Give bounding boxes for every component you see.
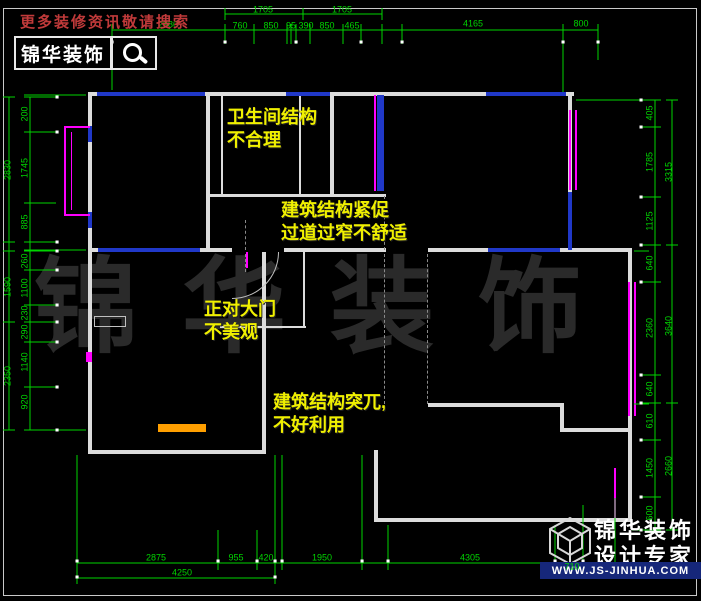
dimension-left: 1590 [4, 277, 13, 297]
dimension-right: 640 [646, 381, 655, 396]
magnifier-icon-handle [139, 56, 148, 65]
dimension-bottom: 955 [228, 554, 243, 563]
dimension-right: 610 [646, 413, 655, 428]
dimension-right: 1125 [646, 211, 655, 230]
dimension-top: 1705 [253, 6, 273, 15]
dimension-left: 885 [21, 214, 30, 229]
brand-text: 锦华装饰 [21, 40, 105, 67]
dimension-bottom: 4305 [460, 554, 480, 563]
dimension-top: 390 [298, 22, 313, 31]
dimension-left: 920 [21, 394, 30, 409]
dimension-linework [0, 0, 701, 601]
annotation-text: 卫生间结构 不合理 [227, 106, 317, 152]
dimension-right: 640 [646, 255, 655, 270]
logo-cube-icon [546, 515, 594, 565]
dimension-top: 1705 [332, 6, 352, 15]
dimension-bottom: 1950 [312, 554, 332, 563]
annotation-text: 正对大门 不美观 [204, 298, 276, 344]
dimension-right: 1450 [646, 458, 655, 478]
dimension-left: 2830 [4, 160, 13, 180]
dimension-top: 465 [344, 22, 359, 31]
dimension-left: 2350 [4, 366, 13, 386]
dimension-bottom: 710 [564, 563, 579, 572]
dimension-bottom: 4250 [172, 569, 192, 578]
dimension-left: 1745 [21, 158, 30, 178]
dimension-left: 1100 [21, 278, 30, 297]
dimension-top: 850 [263, 22, 278, 31]
dimension-top: 850 [319, 22, 334, 31]
dimension-right: 600 [646, 505, 655, 520]
dimension-left: 200 [21, 106, 30, 121]
search-button[interactable] [111, 36, 157, 70]
dimension-right: 405 [646, 105, 655, 120]
dimension-top: 95 [286, 22, 296, 31]
annotation-text: 建筑结构紧促 过道过窄不舒适 [281, 199, 407, 245]
dimension-left: 290 [21, 324, 30, 339]
annotation-text: 建筑结构突兀, 不好利用 [273, 391, 386, 437]
dimension-right: 3640 [665, 316, 674, 336]
dimension-top: 760 [232, 22, 247, 31]
floorplan-canvas: 锦华装饰 [0, 0, 701, 601]
promo-text: 更多装修资讯敬请搜索 [20, 11, 190, 32]
dimension-left: 1140 [21, 352, 30, 371]
dimension-top: 4165 [463, 20, 483, 29]
dimension-left: 260 [21, 253, 30, 268]
dimension-right: 3315 [665, 162, 674, 182]
dimension-right: 2360 [646, 318, 655, 338]
brand-box: 锦华装饰 [14, 36, 112, 70]
dimension-bottom: 2875 [146, 554, 166, 563]
dimension-right: 2660 [665, 456, 674, 476]
dimension-left: 230 [21, 305, 30, 320]
dimension-right: 1785 [646, 152, 655, 172]
dimension-bottom: 420 [258, 554, 273, 563]
dimension-top: 800 [573, 20, 588, 29]
